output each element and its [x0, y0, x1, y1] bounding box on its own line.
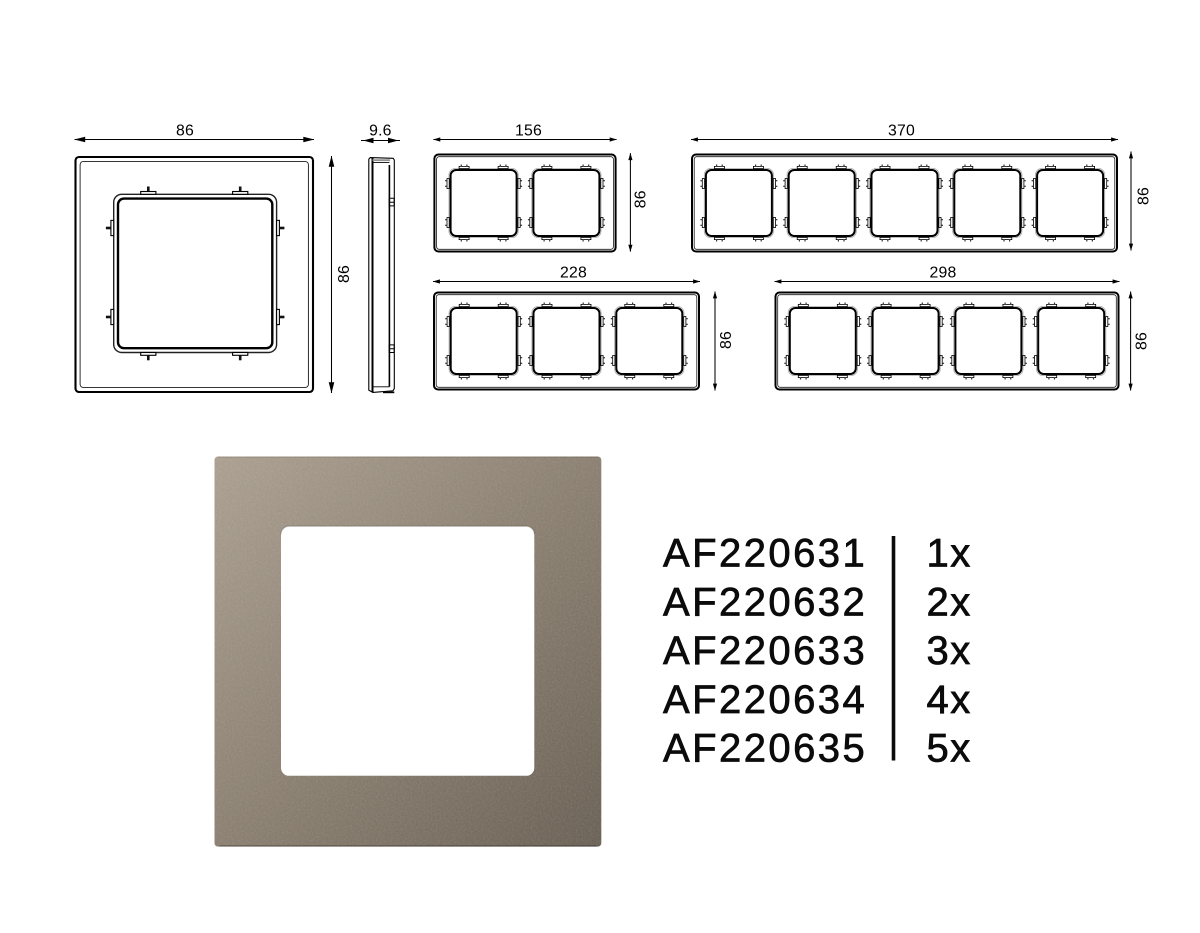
svg-text:4x: 4x [927, 678, 972, 722]
svg-text:3x: 3x [927, 629, 972, 673]
svg-text:AF220634: AF220634 [663, 678, 867, 722]
svg-text:298: 298 [930, 264, 957, 281]
svg-text:1x: 1x [927, 532, 972, 576]
svg-text:2x: 2x [927, 580, 972, 624]
svg-text:86: 86 [1136, 187, 1153, 205]
svg-text:9.6: 9.6 [369, 123, 392, 140]
svg-text:228: 228 [560, 264, 587, 281]
svg-text:AF220633: AF220633 [663, 629, 867, 673]
svg-text:86: 86 [718, 331, 735, 349]
svg-text:156: 156 [515, 123, 542, 140]
svg-text:5x: 5x [927, 727, 972, 771]
svg-text:86: 86 [336, 265, 353, 283]
svg-text:AF220635: AF220635 [663, 727, 867, 771]
svg-text:86: 86 [1134, 332, 1151, 350]
svg-text:86: 86 [176, 123, 194, 140]
svg-text:86: 86 [633, 190, 650, 208]
svg-text:AF220631: AF220631 [663, 532, 867, 576]
svg-text:370: 370 [888, 123, 915, 140]
svg-text:AF220632: AF220632 [663, 580, 867, 624]
